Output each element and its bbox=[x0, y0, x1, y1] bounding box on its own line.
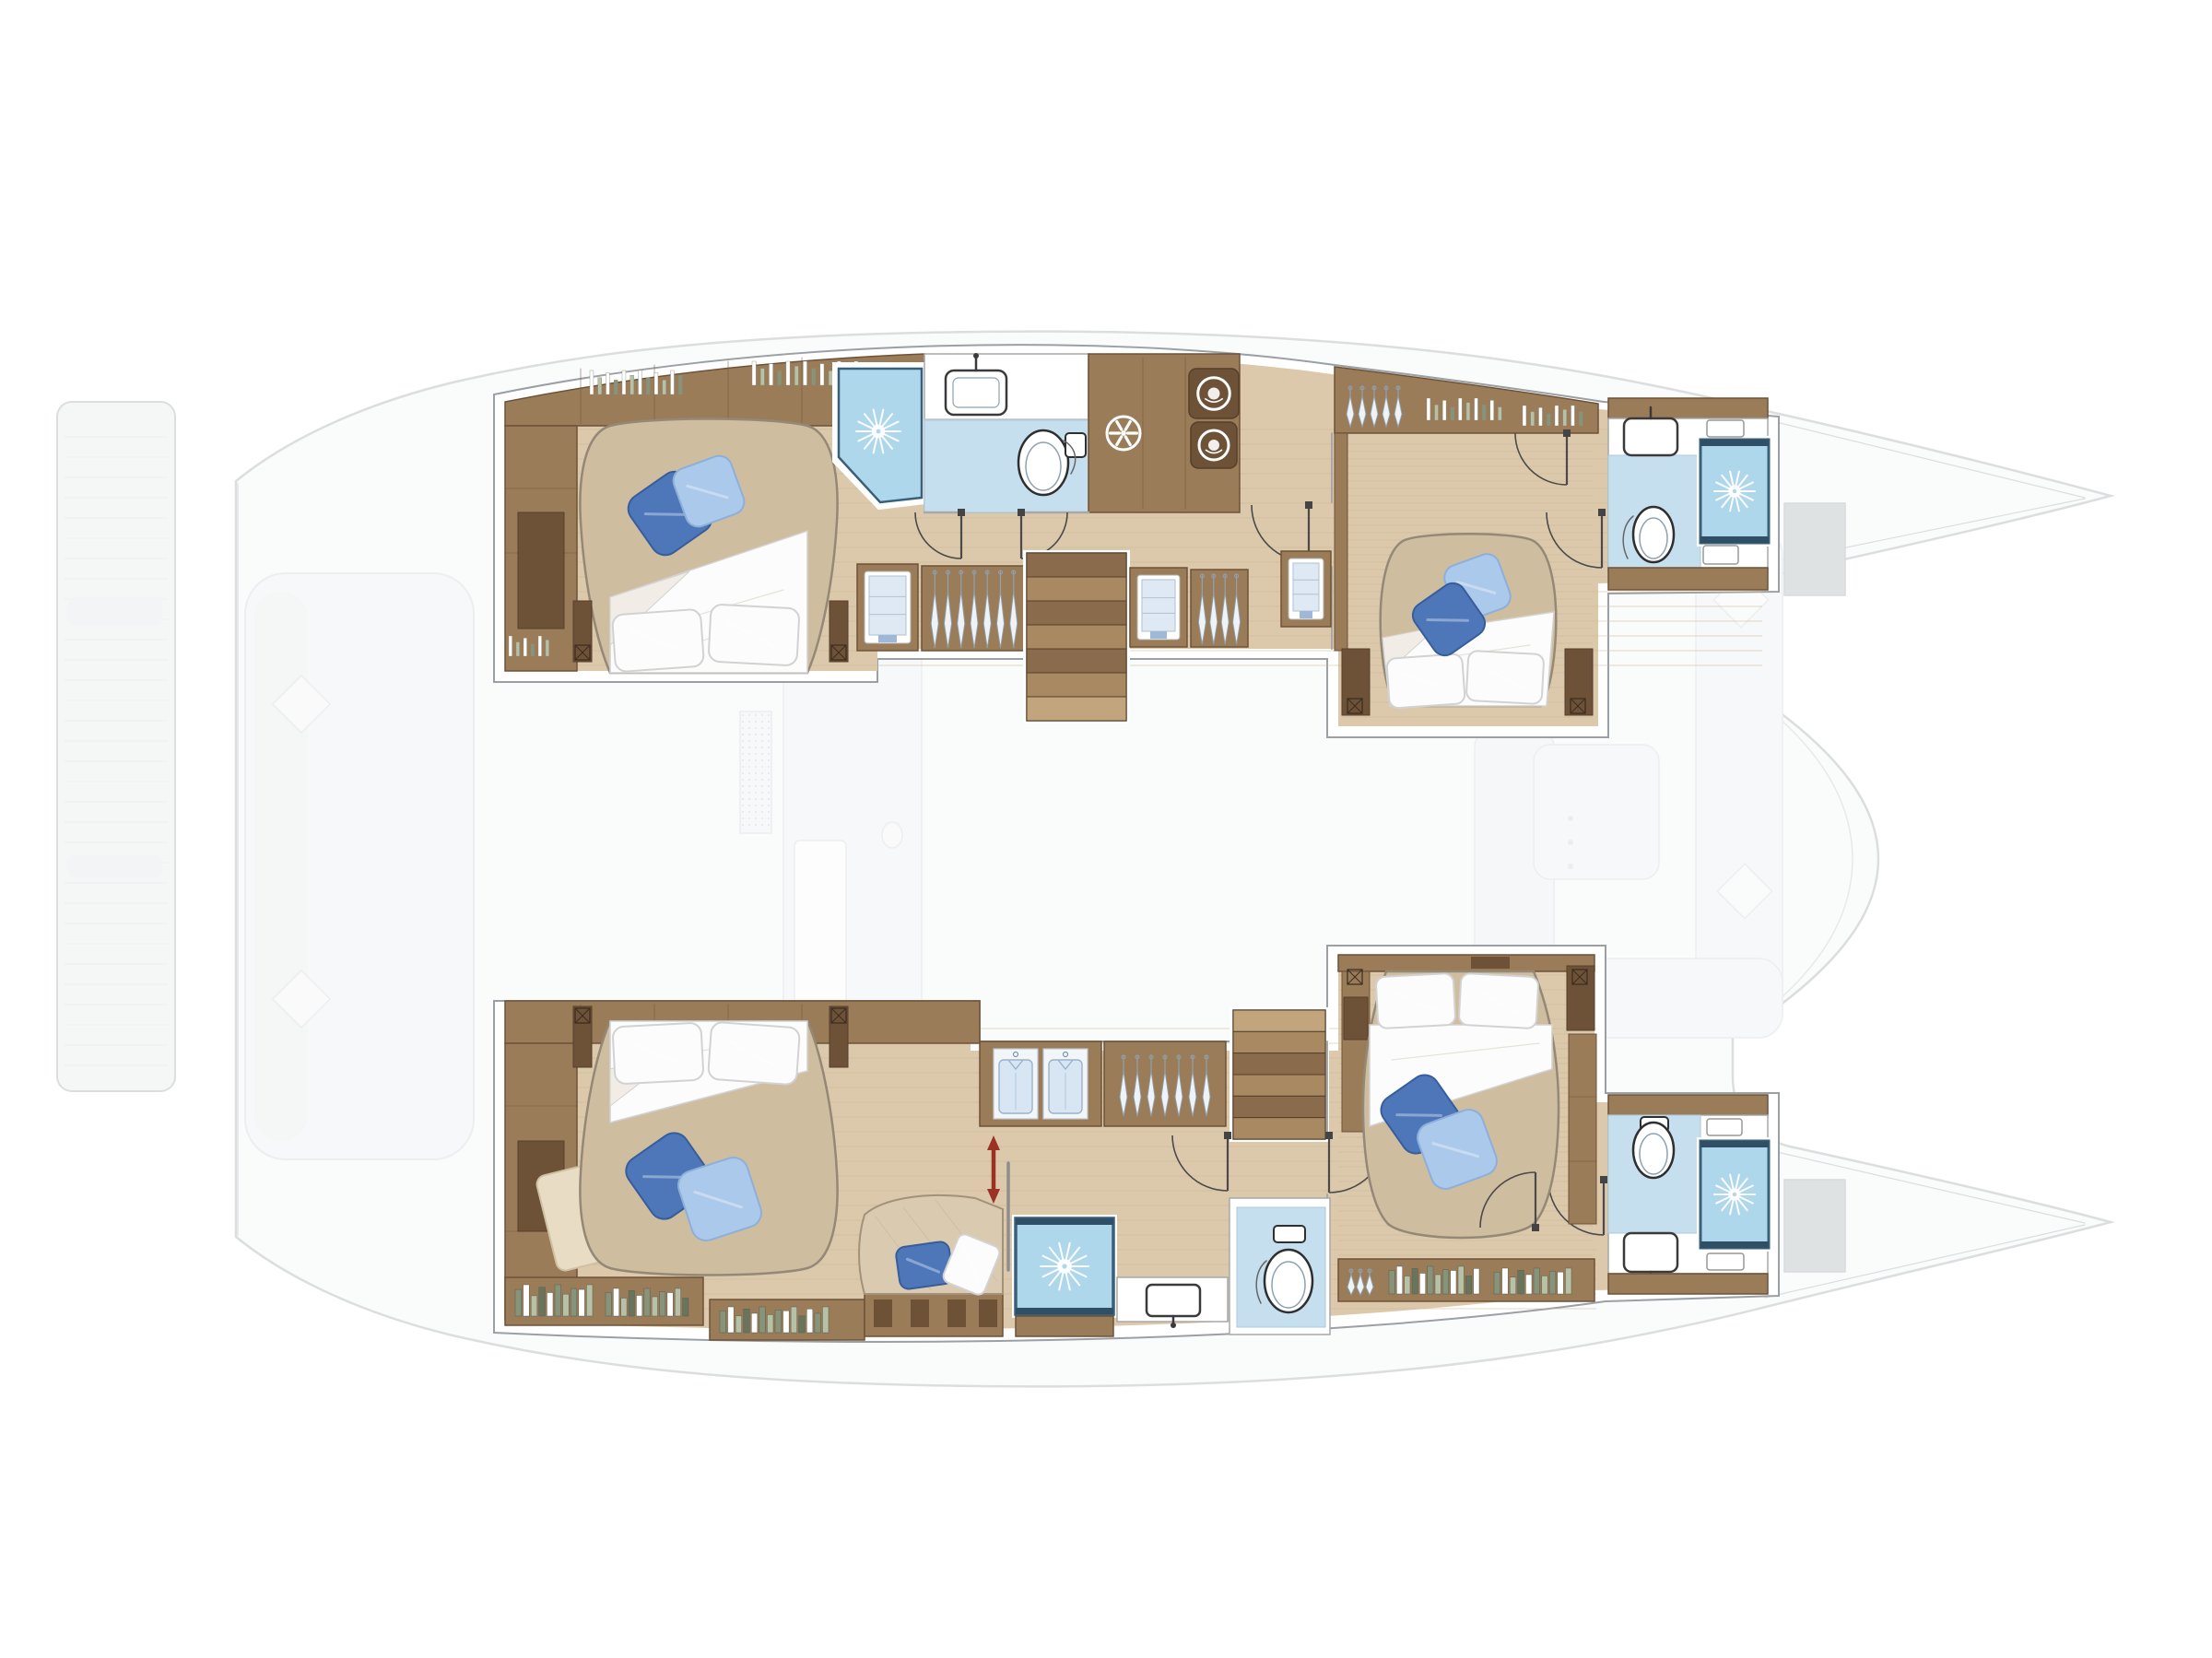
swim-platform bbox=[57, 402, 175, 1091]
hanging-locker bbox=[922, 566, 1027, 651]
towel-locker bbox=[1281, 551, 1331, 627]
books bbox=[606, 1288, 688, 1316]
staircase bbox=[1023, 550, 1130, 723]
side-shelf bbox=[1335, 433, 1347, 651]
sink bbox=[1147, 1285, 1200, 1316]
bow-locker bbox=[1784, 1180, 1845, 1272]
rect bbox=[911, 1299, 929, 1327]
dryer bbox=[1191, 422, 1237, 468]
platform-hatch bbox=[68, 855, 162, 877]
bath-cabinet bbox=[1703, 546, 1738, 564]
staircase bbox=[1230, 1007, 1329, 1142]
towel-locker bbox=[1130, 568, 1187, 647]
fwd-bath-bottom-cabinet bbox=[1608, 568, 1768, 590]
shower-base bbox=[1016, 1316, 1113, 1336]
rect bbox=[1700, 536, 1769, 543]
vent bbox=[1471, 957, 1510, 969]
cabinet-door bbox=[1344, 997, 1368, 1040]
deck-plan-svg bbox=[0, 0, 2212, 1658]
rect bbox=[1700, 440, 1769, 446]
bed-pillow bbox=[1459, 973, 1539, 1029]
hanging-locker bbox=[1347, 1269, 1373, 1295]
fwd-cockpit-dot bbox=[1568, 816, 1573, 821]
vent-porthole bbox=[1107, 417, 1140, 450]
bow-locker bbox=[1784, 503, 1845, 595]
bed-pillow bbox=[1466, 651, 1545, 704]
toilet-cistern bbox=[1065, 433, 1086, 457]
sink bbox=[946, 370, 1006, 415]
rect bbox=[1016, 1218, 1113, 1225]
fwd-bath-top-cabinet bbox=[1608, 398, 1768, 418]
shirt bbox=[1043, 1049, 1088, 1119]
bath-cabinet bbox=[1707, 1253, 1744, 1270]
faucet-head bbox=[973, 353, 979, 359]
rect bbox=[979, 1299, 997, 1327]
towel-locker bbox=[857, 564, 918, 651]
bed-pillow bbox=[708, 1022, 800, 1086]
fwd-cockpit-seat bbox=[1534, 745, 1659, 879]
fwd-cockpit-dot bbox=[1568, 840, 1573, 845]
accent-pillow-dark bbox=[895, 1241, 954, 1290]
bath-cabinet bbox=[1707, 420, 1744, 437]
side-cabinet bbox=[1569, 1034, 1596, 1224]
sink bbox=[1624, 1233, 1677, 1272]
rect bbox=[1016, 1308, 1113, 1314]
bed-pillow bbox=[1376, 973, 1456, 1029]
platform-hatch bbox=[68, 597, 162, 625]
fwd-bath-bottom-cabinet bbox=[1608, 1274, 1768, 1294]
washing-machine bbox=[1189, 369, 1239, 418]
rect bbox=[947, 1299, 966, 1327]
cabinet-door bbox=[518, 512, 564, 629]
rect bbox=[874, 1299, 892, 1327]
bed-pillow bbox=[612, 1023, 703, 1085]
galley-stool bbox=[882, 822, 902, 848]
sink bbox=[1624, 418, 1677, 455]
shirt bbox=[994, 1049, 1038, 1119]
fwd-cabin-top-cabinet bbox=[1338, 955, 1594, 971]
faucet-head bbox=[1171, 1323, 1176, 1328]
bed-pillow bbox=[1386, 653, 1465, 709]
bed-pillow bbox=[612, 609, 704, 673]
deck-plan-page bbox=[0, 0, 2212, 1658]
cockpit-bench bbox=[254, 592, 308, 1141]
bath-cabinet bbox=[1707, 1119, 1742, 1135]
rect bbox=[1700, 1241, 1769, 1248]
hanging-locker bbox=[1191, 570, 1248, 647]
rect bbox=[1700, 1141, 1769, 1147]
fwd-cockpit-dot bbox=[1568, 864, 1573, 869]
fwd-bath-top-cabinet bbox=[1608, 1095, 1768, 1115]
bed-pillow bbox=[708, 605, 799, 666]
toilet-cistern bbox=[1274, 1226, 1305, 1242]
